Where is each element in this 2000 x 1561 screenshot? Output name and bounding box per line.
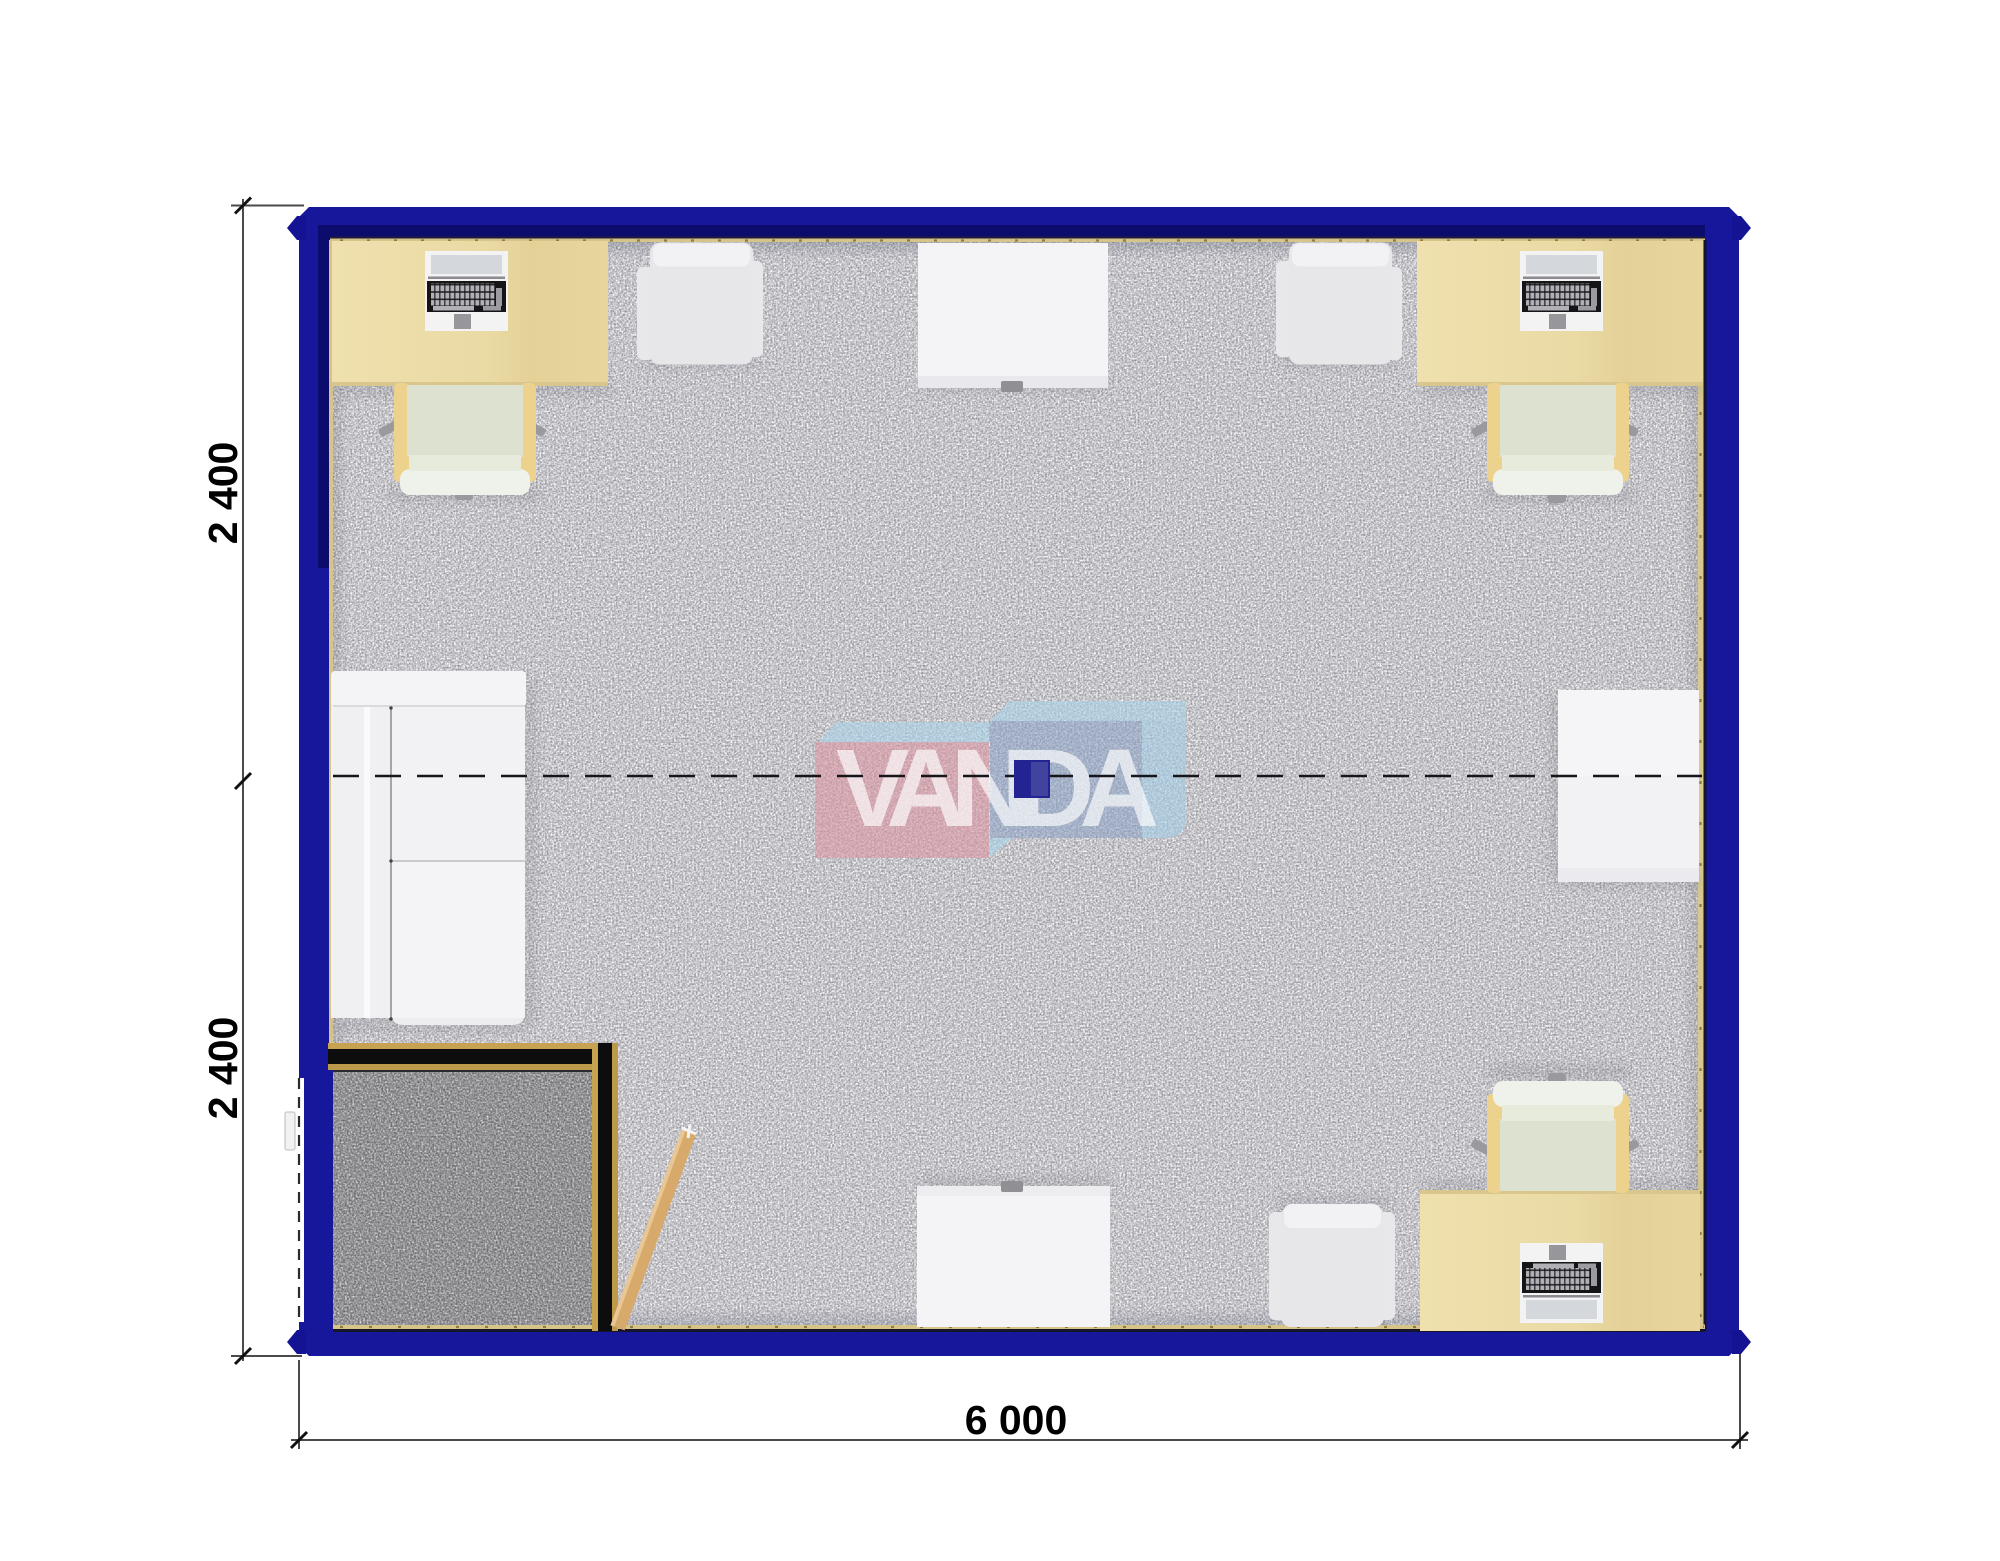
svg-text:6 000: 6 000 — [965, 1397, 1068, 1443]
svg-text:2 400: 2 400 — [200, 1017, 246, 1120]
svg-text:VANDA: VANDA — [836, 727, 1157, 850]
svg-text:2 400: 2 400 — [200, 442, 246, 545]
